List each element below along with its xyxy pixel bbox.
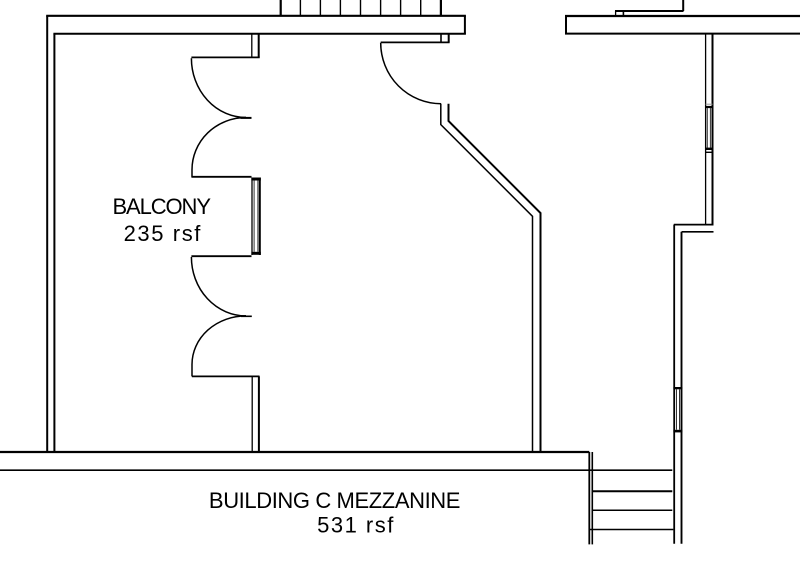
svg-text:BALCONY: BALCONY	[112, 194, 211, 219]
svg-text:531 rsf: 531 rsf	[317, 512, 395, 537]
svg-text:235 rsf: 235 rsf	[124, 221, 202, 246]
svg-text:BUILDING C MEZZANINE: BUILDING C MEZZANINE	[209, 488, 460, 513]
